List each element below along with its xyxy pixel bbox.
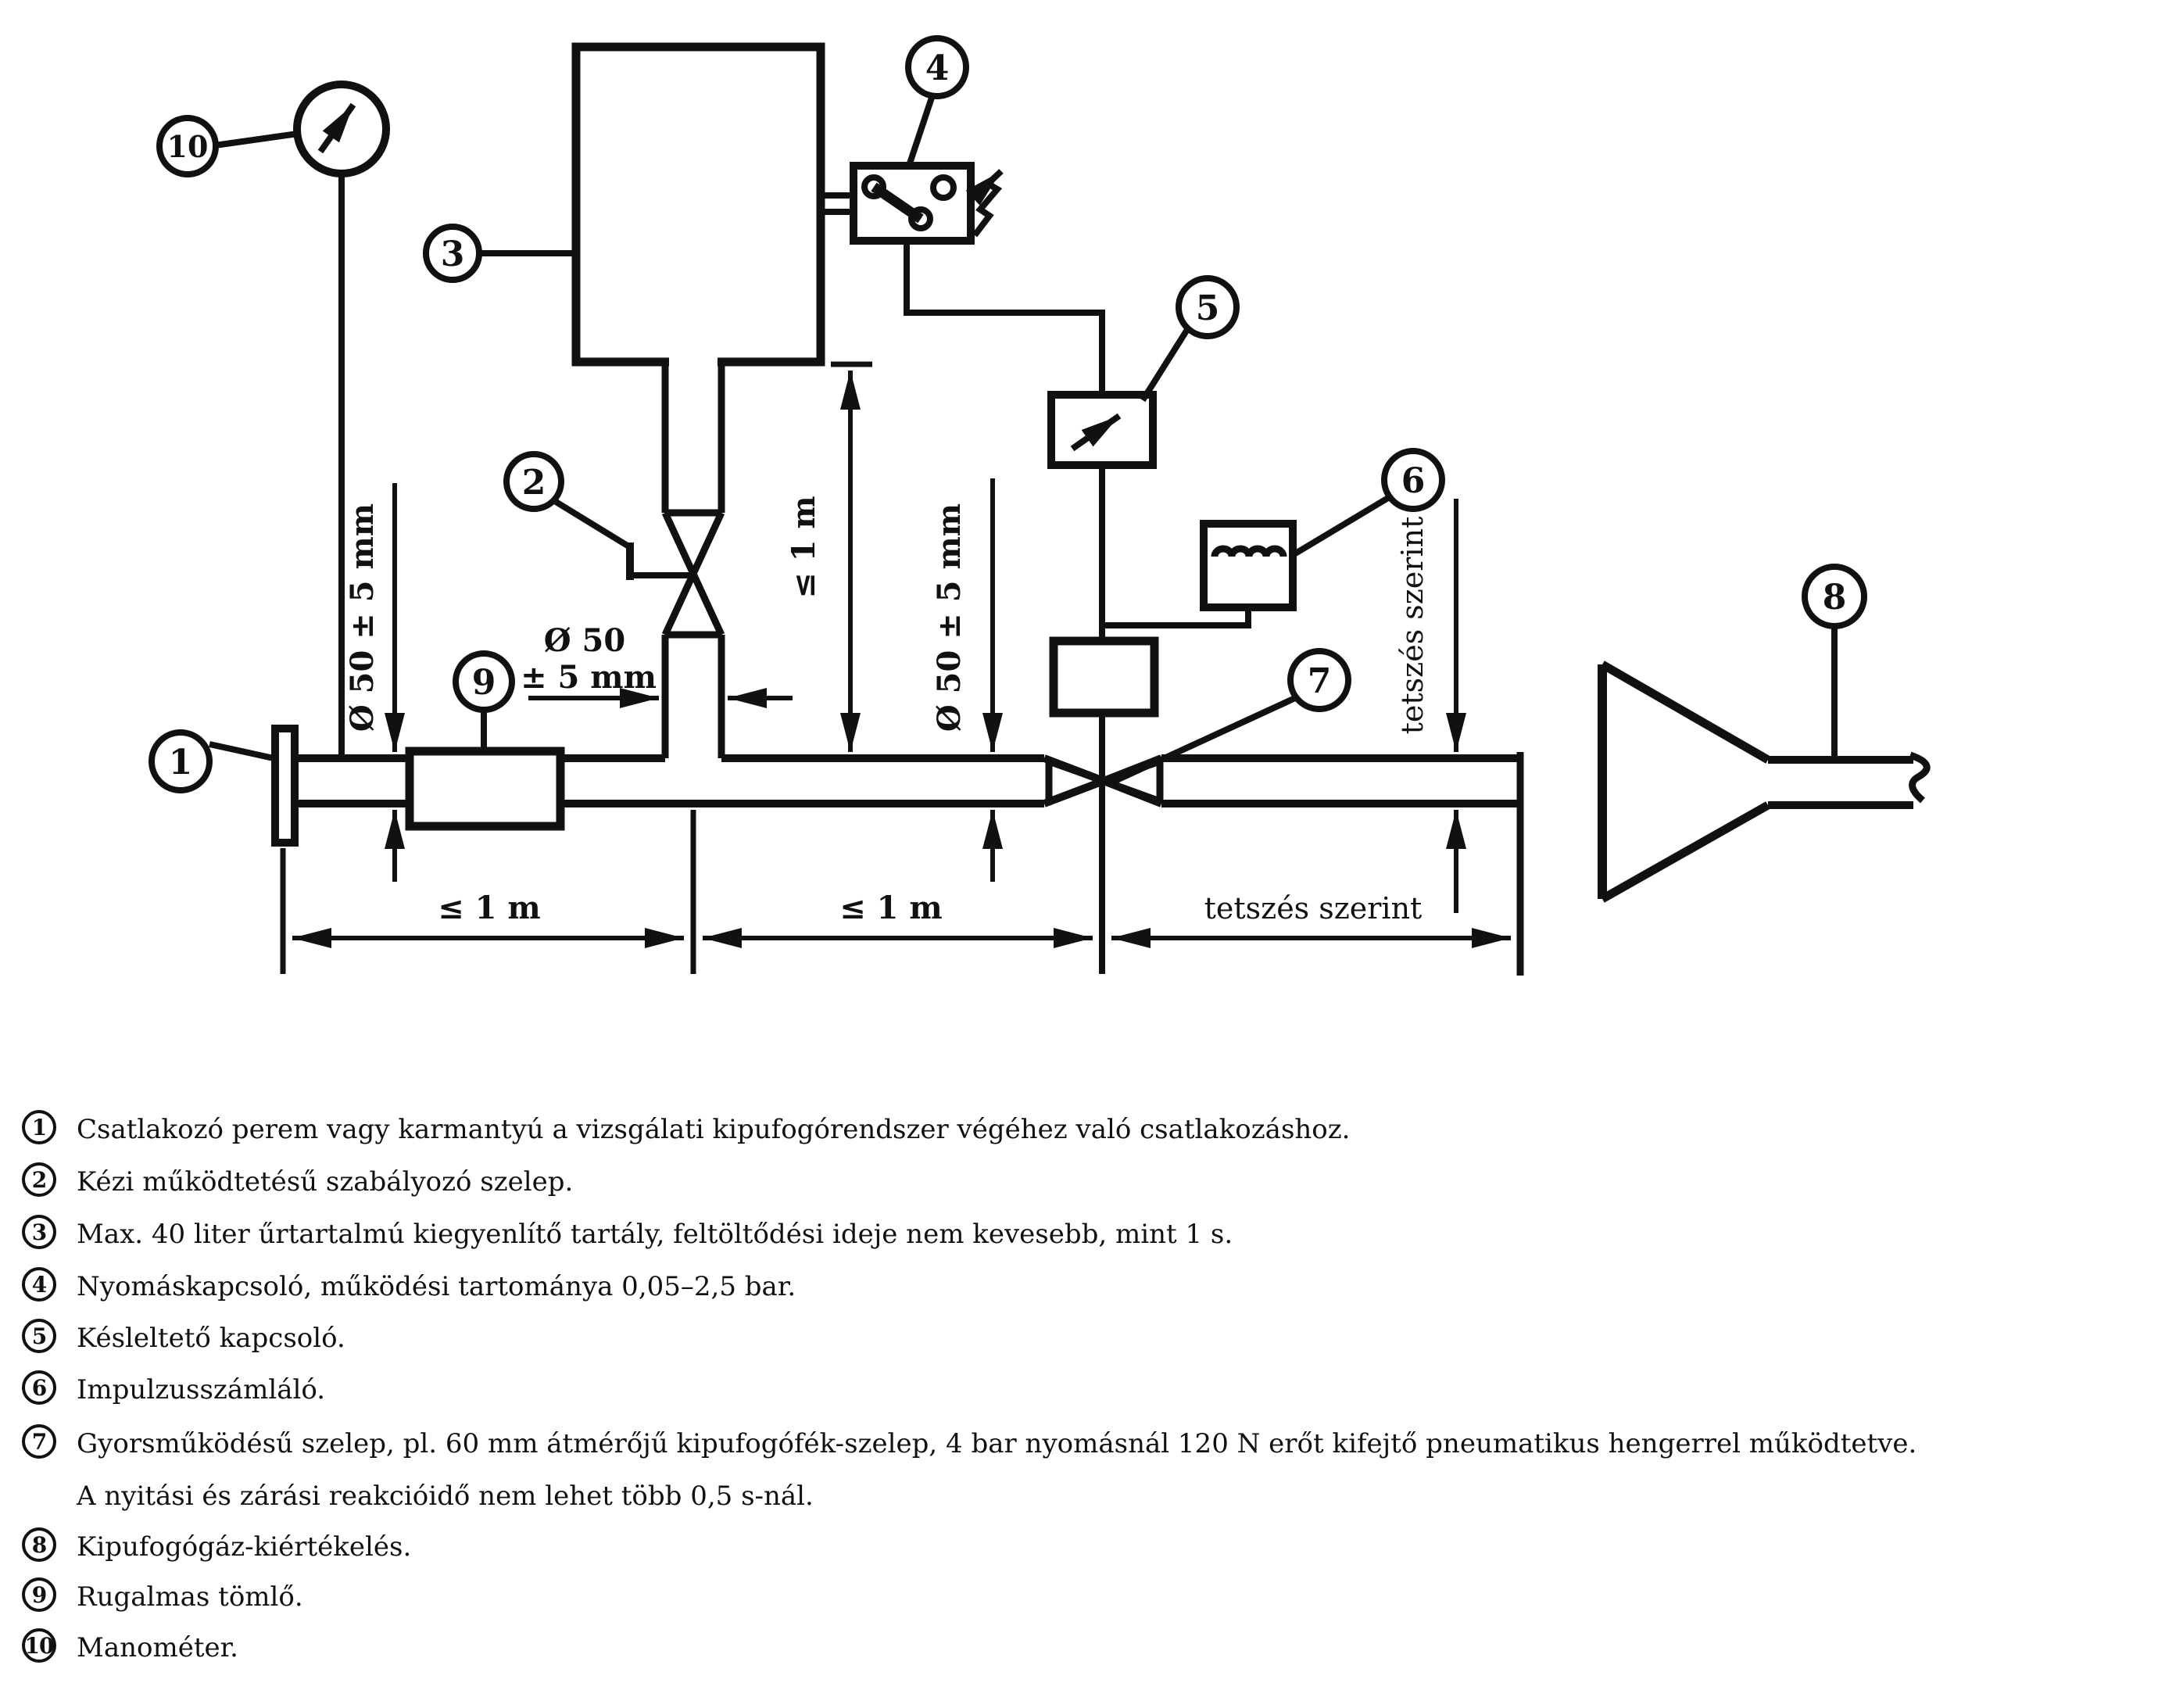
legend-text-2: Kézi működtetésű szabályozó szelep. [77,1162,573,1200]
legend-num-2: 2 [22,1162,56,1197]
legend-num-5: 5 [22,1319,56,1353]
legend-num-7: 7 [22,1424,56,1459]
pulse-counter [1204,524,1293,607]
legend-num-4: 4 [22,1267,56,1302]
callout-4: 4 [908,38,966,96]
legend-num-3: 3 [22,1215,56,1249]
exhaust-funnel [1602,664,1927,899]
legend-item-9: 9 Rugalmas tömlő. [22,1577,303,1615]
surge-tank [576,47,821,371]
legend-text-7: Gyorsműködésű szelep, pl. 60 mm átmérőjű… [77,1424,1916,1462]
zigzag-arrow-icon [975,171,1001,235]
callout-3-label: 3 [441,235,465,274]
callout-8-label: 8 [1823,578,1847,618]
legend-text-6: Impulzusszámláló. [77,1370,325,1408]
legend-num-9: 9 [22,1577,56,1612]
callout-10-label: 10 [167,129,209,164]
callout-8: 8 [1805,567,1864,626]
legend-text-8: Kipufogógáz-kiértékelés. [77,1527,411,1565]
callout-9: 9 [456,653,512,710]
legend-item-1: 1 Csatlakozó perem vagy karmantyú a vizs… [22,1110,1350,1148]
callout-6: 6 [1384,451,1442,509]
callout-9-label: 9 [472,663,496,703]
legend-text-7-line2: A nyitási és zárási reakcióidő nem lehet… [77,1478,814,1514]
dim-span2: ≤ 1 m [839,890,943,926]
callout-2-label: 2 [522,463,546,503]
legend-text-5: Késleltető kapcsoló. [77,1319,345,1356]
legend-text-9: Rugalmas tömlő. [77,1577,303,1615]
valve-actuator [1054,641,1154,974]
delay-switch [1051,395,1153,465]
manual-control-valve [630,513,721,635]
legend-text-10: Manométer. [77,1628,238,1666]
legend-num-6: 6 [22,1370,56,1405]
legend-text-4: Nyomáskapcsoló, működési tartománya 0,05… [77,1267,796,1305]
legend-item-7: 7 Gyorsműködésű szelep, pl. 60 mm átmérő… [22,1424,1916,1462]
callout-5-label: 5 [1196,288,1220,328]
connection-flange [275,729,295,843]
dim-diameter-left: Ø 50 ± 5 mm [344,503,381,732]
callout-1: 1 [152,732,209,790]
callout-7: 7 [1290,651,1348,709]
legend-num-1: 1 [22,1110,56,1144]
callout-3: 3 [426,227,479,280]
legend-item-6: 6 Impulzusszámláló. [22,1370,325,1408]
legend-item-8: 8 Kipufogógáz-kiértékelés. [22,1527,411,1565]
legend-text-1: Csatlakozó perem vagy karmantyú a vizsgá… [77,1110,1350,1148]
callout-2: 2 [506,454,561,509]
legend-text-3: Max. 40 liter űrtartalmú kiegyenlítő tar… [77,1215,1233,1252]
legend-item-5: 5 Késleltető kapcsoló. [22,1319,345,1356]
callout-1-label: 1 [169,743,193,782]
pressure-switch [821,166,1001,241]
dim-span3: tetszés szerint [1204,891,1423,926]
callout-7-label: 7 [1308,661,1332,701]
dim-span1: ≤ 1 m [438,890,541,926]
callout-6-label: 6 [1401,461,1426,501]
dim-any-vertical: tetszés szerint [1395,517,1430,735]
callout-4-label: 4 [925,48,950,88]
callout-5: 5 [1179,278,1236,336]
branch-pipe [665,362,721,758]
legend-item-4: 4 Nyomáskapcsoló, működési tartománya 0,… [22,1267,796,1305]
dim-diameter-right: Ø 50 ± 5 mm [931,503,968,732]
dim-diameter-branch-line2: ± 5 mm [521,659,657,696]
legend-item-3: 3 Max. 40 liter űrtartalmú kiegyenlítő t… [22,1215,1233,1252]
exhaust-test-schematic-page: Ø 50 ± 5 mm Ø 50 ± 5 mm ≤ 1 m Ø 50 ± 5 m… [0,0,2158,1708]
callout-10: 10 [159,118,216,174]
legend-item-2: 2 Kézi működtetésű szabályozó szelep. [22,1162,573,1200]
flexible-hose [410,751,560,826]
legend-item-10: 10 Manométer. [22,1628,238,1666]
legend-num-8: 8 [22,1527,56,1562]
schematic-drawing: Ø 50 ± 5 mm Ø 50 ± 5 mm ≤ 1 m Ø 50 ± 5 m… [0,0,2158,1047]
legend-num-10: 10 [22,1628,56,1663]
dim-height-vertical: ≤ 1 m [786,496,822,599]
dim-diameter-branch-line1: Ø 50 [544,622,625,659]
